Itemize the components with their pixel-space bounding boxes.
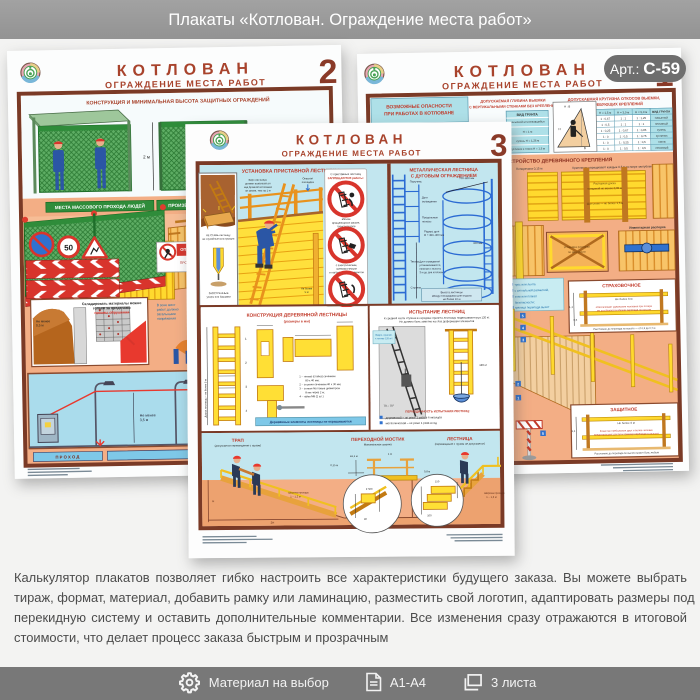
svg-text:1 : 0,85: 1 : 0,85: [637, 128, 647, 132]
svg-text:1 : 1: 1 : 1: [621, 122, 627, 126]
svg-text:трос или лента: трос или лента: [514, 282, 535, 286]
svg-text:Не более: Не более: [301, 286, 313, 290]
svg-text:70 – 75°: 70 – 75°: [384, 404, 394, 408]
svg-text:супесь Н = 1,25 м: супесь Н = 1,25 м: [516, 139, 539, 143]
svg-text:Поперечина 0,15 м: Поперечина 0,15 м: [516, 166, 543, 171]
svg-text:ограждения: ограждения: [422, 200, 437, 203]
svg-text:1,1: 1,1: [569, 305, 573, 309]
svg-text:над бровкой котлована: над бровкой котлована: [244, 185, 273, 189]
svg-text:1 м: 1 м: [388, 452, 392, 456]
svg-text:Н: Н: [212, 499, 214, 503]
svg-text:Длина лестницы – не более 5 м: Длина лестницы – не более 5 м: [203, 379, 207, 418]
svg-text:1 : 1,25: 1 : 1,25: [636, 116, 646, 120]
svg-text:по диагонали: по диагонали: [568, 250, 586, 254]
svg-text:Н = 1 м: Н = 1 м: [523, 130, 533, 134]
svg-text:ВИД ГРУНТА: ВИД ГРУНТА: [652, 109, 671, 113]
svg-text:1 – 1,2 м: 1 – 1,2 м: [486, 495, 497, 499]
svg-text:вблизи: вблизи: [342, 217, 351, 221]
svg-text:деревянной – не реже 1 раза: деревянной – не реже 1 раза в 6 месяцев: [386, 415, 443, 419]
svg-text:2 – ступени сечением 40 х 30: 2 – ступени сечением 40 х 30 мм;: [299, 382, 341, 386]
svg-text:1 : 0: 1 : 0: [603, 147, 609, 151]
svg-text:1 : 0: 1 : 0: [603, 141, 609, 145]
svg-text:Не должно быть заметно на глаз: Не должно быть заметно на глаз деформаци…: [399, 319, 474, 324]
svg-text:1 – тетива (стойка) сечением: 1 – тетива (стойка) сечением: [299, 374, 335, 378]
svg-text:2 500: 2 500: [366, 487, 373, 491]
svg-text:Верх лестницы: Верх лестницы: [249, 178, 267, 182]
svg-text:Н = 1,5 м: Н = 1,5 м: [599, 111, 611, 115]
svg-text:≥1,1 м: ≥1,1 м: [350, 454, 358, 458]
svg-text:упоры или башмаки: упоры или башмаки: [207, 295, 232, 299]
svg-text:Тетива: Тетива: [410, 259, 419, 263]
svg-text:1 – 1,2 м: 1 – 1,2 м: [290, 494, 301, 498]
svg-text:1 : 0,5: 1 : 0,5: [638, 146, 647, 150]
svg-text:Инвентарная распорка: Инвентарная распорка: [629, 225, 666, 230]
svg-text:3,5 м: 3,5 м: [140, 418, 149, 422]
svg-text:2Н: 2Н: [271, 521, 275, 525]
svg-text:на случайные конструкции: на случайные конструкции: [202, 237, 235, 241]
svg-text:граница перепада высот: граница перепада высот: [515, 305, 550, 310]
svg-text:насыпной: насыпной: [655, 116, 669, 120]
svg-text:Н : В: Н : В: [564, 104, 570, 108]
svg-text:1 : 0,75: 1 : 0,75: [637, 134, 647, 138]
svg-text:3 м до дна котлована: 3 м до дна котлована: [419, 270, 445, 274]
svg-text:суглинок и глина Н = 1,5 м: суглинок и глина Н = 1,5 м: [511, 146, 545, 151]
svg-text:лессовый: лессовый: [655, 146, 669, 150]
svg-text:5: 5: [522, 314, 524, 318]
svg-text:0,5 м: 0,5 м: [36, 323, 44, 327]
svg-text:1 : 0,5: 1 : 0,5: [638, 140, 647, 144]
svg-text:3 – стяжки болтовые диаметром: 3 – стяжки болтовые диаметром: [299, 386, 340, 390]
svg-text:4: 4: [522, 326, 524, 330]
svg-text:ЗАПРЕЩАЮТСЯ работы:: ЗАПРЕЩАЮТСЯ работы:: [328, 176, 364, 180]
svg-text:100: 100: [427, 513, 432, 517]
svg-text:толщиной не менее 0,05 м: толщиной не менее 0,05 м: [587, 186, 622, 191]
svg-text:(допускается перемещение с гру: (допускается перемещение с грузом): [215, 443, 262, 447]
svg-text:ПЕРИОДИЧНОСТЬ ИСПЫТАНИЯ ЛЕСТНИ: ПЕРИОДИЧНОСТЬ ИСПЫТАНИЯ ЛЕСТНИЦ:: [405, 409, 470, 414]
svg-text:2 м: 2 м: [143, 154, 150, 159]
svg-text:Поручень: Поручень: [410, 179, 423, 183]
svg-text:ЗАЩИТНОЕ: ЗАЩИТНОЕ: [610, 407, 637, 413]
svg-text:площадка: площадка: [302, 181, 315, 184]
svg-text:1 : 0: 1 : 0: [603, 135, 609, 139]
svg-text:полосы: полосы: [422, 220, 431, 223]
svg-text:2: 2: [318, 53, 338, 91]
svg-text:напряжения: напряжения: [157, 316, 176, 320]
svg-text:8 мм через 2 м;: 8 мм через 2 м;: [305, 390, 325, 394]
svg-text:5 м: 5 м: [305, 290, 309, 294]
svg-text:Ширина прохода: Ширина прохода: [484, 491, 505, 495]
svg-text:глина: глина: [658, 140, 666, 144]
svg-text:металлической – не реже 1 ра: металлической – не реже 1 раза в год: [386, 421, 437, 425]
svg-text:Не более 6 м: Не более 6 м: [617, 421, 634, 425]
svg-text:безопасности;: безопасности;: [515, 300, 535, 304]
svg-text:МЕТАЛЛИЧЕСКАЯ ЛЕСТНИЦА: МЕТАЛЛИЧЕСКАЯ ЛЕСТНИЦА: [409, 167, 478, 173]
svg-text:суглинок: суглинок: [656, 134, 668, 138]
svg-text:КОТЛОВАН: КОТЛОВАН: [296, 132, 407, 148]
svg-text:Распорная доска: Распорная доска: [593, 181, 616, 185]
svg-text:4 – гайки М8 (2 шт.): 4 – гайки М8 (2 шт.): [299, 394, 323, 398]
svg-text:ВИД ГРУНТА: ВИД ГРУНТА: [517, 113, 539, 117]
svg-text:призмы обрушения: призмы обрушения: [94, 310, 129, 315]
svg-text:Не более 6 м: Не более 6 м: [615, 297, 632, 301]
svg-text:1 : 0,67: 1 : 0,67: [619, 128, 629, 132]
svg-text:Установка распорки: Установка распорки: [564, 245, 590, 250]
svg-text:песчаный: песчаный: [655, 122, 668, 126]
svg-text:0,8 м: 0,8 м: [424, 469, 430, 473]
svg-text:3: 3: [522, 338, 524, 342]
svg-text:Дуги ограждения: Дуги ограждения: [419, 259, 440, 263]
svg-text:1 : 0,5: 1 : 0,5: [620, 146, 629, 150]
svg-text:НЕ СТАВЬ лестницу: НЕ СТАВЬ лестницу: [206, 233, 231, 237]
svg-text:1 : 0,67: 1 : 0,67: [600, 117, 610, 121]
svg-text:Ширина прохода: Ширина прохода: [288, 490, 309, 494]
svg-text:R = 350–400 мм: R = 350–400 мм: [424, 233, 444, 237]
svg-text:1 : 0,25: 1 : 0,25: [619, 140, 629, 144]
svg-text:0,15 м: 0,15 м: [330, 463, 338, 467]
svg-text:П Р О Х О Д: П Р О Х О Д: [55, 454, 79, 459]
svg-text:не менее, чем на 1 м: не менее, чем на 1 м: [245, 188, 271, 192]
svg-text:5: 5: [542, 432, 544, 436]
svg-text:Дуги: Дуги: [422, 195, 428, 199]
svg-text:Продольные: Продольные: [422, 215, 438, 219]
svg-text:Деревянные элементы лестницы н: Деревянные элементы лестницы не окрашива…: [270, 419, 352, 424]
svg-text:к тетиве 120 кгс: к тетиве 120 кгс: [375, 337, 393, 340]
svg-text:(перемещение с грузом не допус: (перемещение с грузом не допускается): [435, 442, 485, 446]
svg-text:3: 3: [490, 128, 508, 163]
svg-text:ОГРАЖДЕНИЕ МЕСТА РАБОТ: ОГРАЖДЕНИЕ МЕСТА РАБОТ: [282, 148, 422, 158]
svg-text:Н: Н: [558, 127, 560, 131]
svg-text:не более 10 м: не более 10 м: [443, 297, 461, 301]
svg-text:120 кг: 120 кг: [479, 363, 487, 367]
svg-text:насыпной неслежавшийся: насыпной неслежавшийся: [510, 119, 545, 124]
svg-text:Н = 3,0 м: Н = 3,0 м: [617, 110, 629, 114]
svg-text:В: В: [584, 146, 586, 150]
svg-text:Опасная: Опасная: [302, 176, 313, 180]
svg-text:600 мм: 600 мм: [473, 241, 482, 245]
svg-text:с сигнальной разметкой,: с сигнальной разметкой,: [515, 288, 550, 293]
svg-text:Радиус дуги: Радиус дуги: [424, 229, 440, 233]
svg-text:Минимальная ширина: Минимальная ширина: [364, 442, 392, 446]
svg-text:Ступени: Ступени: [411, 285, 422, 289]
svg-text:1 : 1: 1 : 1: [639, 122, 645, 126]
svg-text:1,1: 1,1: [571, 429, 575, 433]
svg-text:50: 50: [64, 243, 74, 252]
svg-text:1 : 0,5: 1 : 0,5: [620, 134, 629, 138]
svg-text:1: 1: [517, 396, 519, 400]
svg-text:1 : 1: 1 : 1: [620, 116, 626, 120]
svg-text:1 : 0,5: 1 : 0,5: [601, 123, 610, 127]
svg-text:СТРАХОВОЧНОЕ: СТРАХОВОЧНОЕ: [602, 283, 641, 289]
svg-text:ЗАОСТРЕННЫЕ: ЗАОСТРЕННЫЕ: [209, 291, 229, 295]
svg-text:ЛЕСТНИЦА: ЛЕСТНИЦА: [447, 436, 473, 441]
svg-text:Н = 5,0 м: Н = 5,0 м: [635, 110, 647, 114]
svg-text:супесь: супесь: [657, 128, 667, 132]
svg-text:знак или плакат: знак или плакат: [515, 294, 538, 298]
svg-text:700–800 мм: 700–800 мм: [459, 176, 474, 180]
svg-text:2: 2: [517, 382, 519, 386]
svg-text:0,6: 0,6: [573, 318, 577, 322]
svg-text:(размеры в мм): (размеры в мм): [284, 319, 310, 323]
svg-text:80 х 40 мм;: 80 х 40 мм;: [305, 378, 319, 382]
svg-text:Шаг стоек — не более 1,5 м: Шаг стоек — не более 1,5 м: [587, 201, 623, 206]
svg-text:ИСПЫТАНИЕ ЛЕСТНИЦ: ИСПЫТАНИЕ ЛЕСТНИЦ: [409, 309, 465, 315]
svg-text:150: 150: [435, 479, 440, 483]
svg-text:1 : 0,25: 1 : 0,25: [601, 129, 611, 133]
svg-text:ВОЗМОЖНЫЕ ОПАСНОСТИ: ВОЗМОЖНЫЕ ОПАСНОСТИ: [386, 103, 452, 110]
svg-text:ТРАП: ТРАП: [232, 438, 244, 443]
